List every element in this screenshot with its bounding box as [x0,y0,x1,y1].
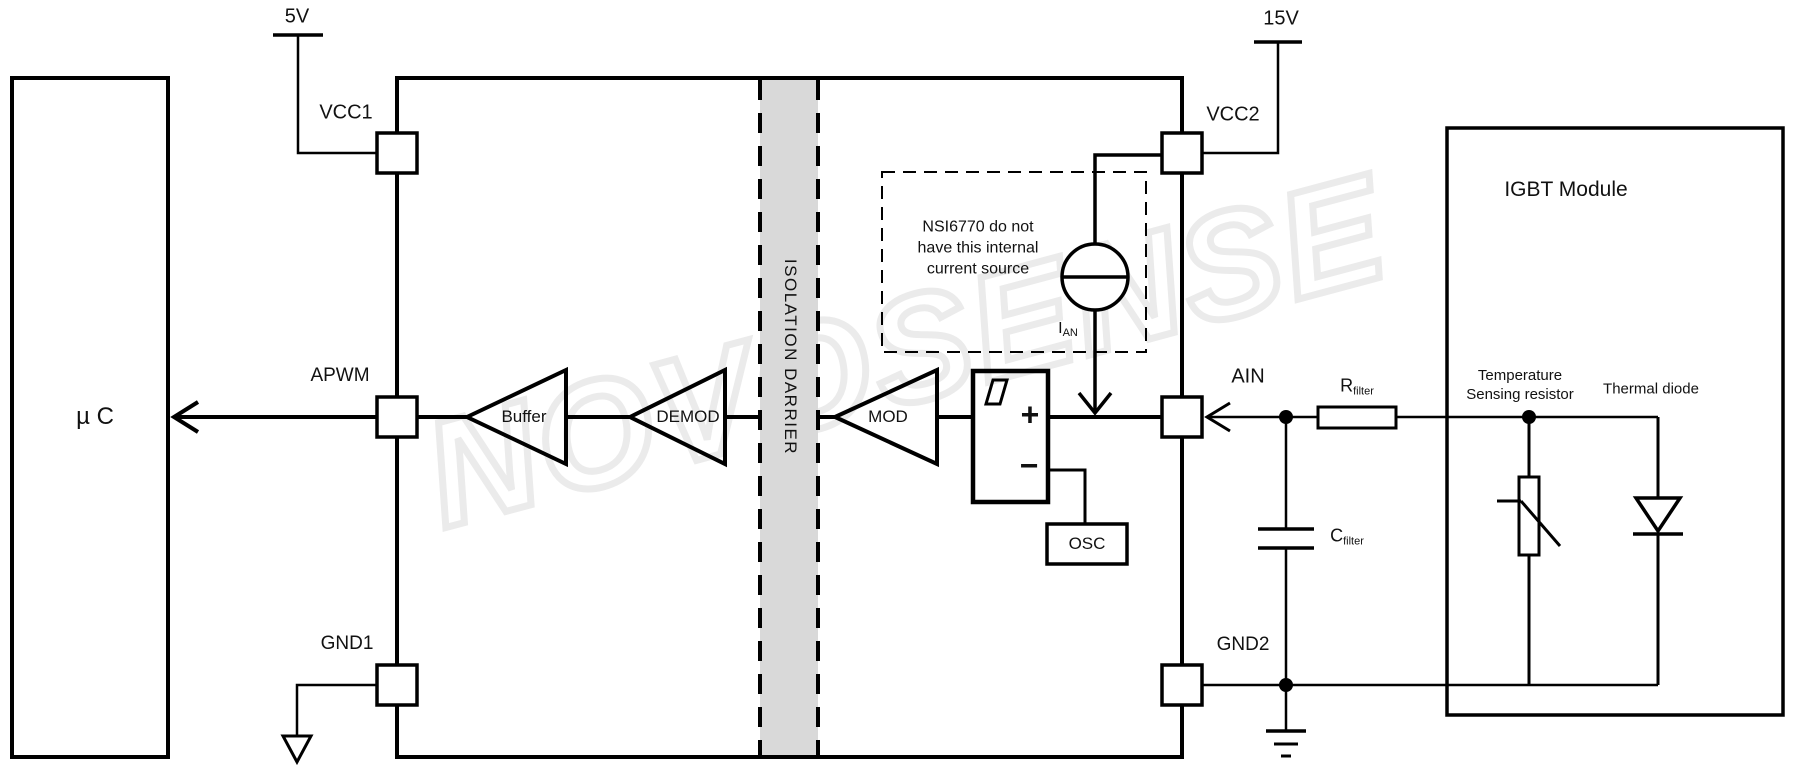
5v-wire [298,35,377,153]
label-pin-gnd2: GND2 [1217,634,1270,656]
label-mod: MOD [868,407,908,427]
pin-gnd1 [377,665,417,705]
label-ian: IAN [1058,320,1078,340]
label-pin-gnd1: GND1 [321,633,374,655]
label-buffer: Buffer [501,407,546,427]
pin-vcc1 [377,133,417,173]
label-mcu: µ C [76,403,114,431]
schematic-canvas: NOVOSENSE [0,0,1799,779]
diode-triangle-icon [1636,498,1680,531]
label-rfilter-base: R [1340,376,1353,396]
label-cfilter-base: C [1330,526,1343,546]
igbt-module-box [1447,128,1783,715]
label-5v: 5V [285,6,309,29]
label-isolation-barrier: ISOLATION DARRIER [780,259,800,455]
label-rfilter: Rfilter [1340,376,1374,399]
nsi6770-note-line3: current source [918,259,1039,280]
nsi6770-note-line1: NSI6770 do not [918,217,1039,238]
pin-apwm [377,397,417,437]
rfilter-resistor [1318,407,1396,428]
label-thermistor: Temperature Sensing resistor [1466,366,1574,404]
label-15v: 15V [1263,8,1299,31]
label-cfilter-sub: filter [1343,536,1364,548]
15v-wire [1202,42,1278,153]
label-pin-vcc1: VCC1 [319,102,372,125]
label-pin-vcc2: VCC2 [1206,104,1259,127]
gnd1-wire [297,685,377,736]
current-source-supply-wire [1095,155,1162,245]
comparator-plus-sign: + [1021,397,1040,434]
pin-ain [1162,397,1202,437]
hysteresis-icon [986,380,1007,404]
gnd1-earth-icon [283,736,311,762]
label-demod: DEMOD [656,407,719,427]
label-pin-apwm: APWM [310,365,369,387]
pin-gnd2 [1162,665,1202,705]
label-igbt-module: IGBT Module [1504,178,1627,202]
label-thermistor-line2: Sensing resistor [1466,385,1574,404]
label-thermistor-line1: Temperature [1466,366,1574,385]
thermistor-body [1519,477,1539,555]
label-osc: OSC [1069,534,1106,554]
label-ian-sub: AN [1063,327,1078,339]
wire-comparator-to-osc [1048,470,1085,524]
label-thermal-diode: Thermal diode [1603,380,1699,397]
nsi6770-note-text: NSI6770 do not have this internal curren… [918,217,1039,280]
comparator-minus-sign: − [1020,448,1039,485]
label-rfilter-sub: filter [1353,386,1374,398]
label-pin-ain: AIN [1231,366,1264,389]
pin-vcc2 [1162,133,1202,173]
label-cfilter: Cfilter [1330,526,1364,549]
nsi6770-note-line2: have this internal [918,238,1039,259]
